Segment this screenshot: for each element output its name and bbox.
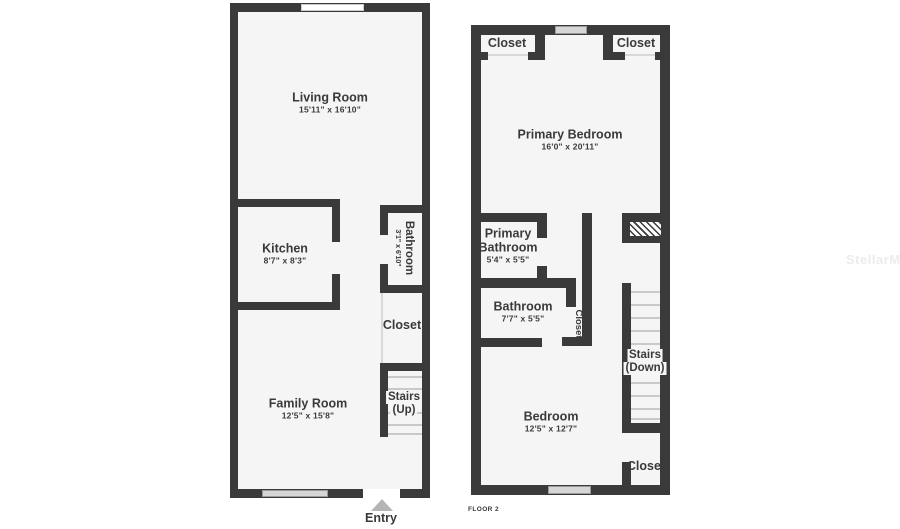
bathroom-label: Bathroom 7'7" x 5'5": [493, 300, 552, 325]
room-name: Primary Bedroom: [518, 128, 623, 142]
window: [301, 4, 364, 11]
bedroom-label: Bedroom 12'5" x 12'7": [524, 410, 579, 435]
room-name: Bathroom: [493, 300, 552, 314]
wall-segment: [422, 3, 430, 498]
wall-segment: [230, 302, 340, 310]
room-name: Living Room: [292, 91, 368, 105]
closet-front-line: [625, 54, 655, 56]
stair-tread: [631, 304, 660, 306]
bathroom-label: Bathroom 3'1" x 6'10": [393, 221, 415, 275]
wall-segment: [332, 199, 340, 242]
hatched-chase: [630, 222, 661, 236]
room-name: Closet: [627, 459, 665, 473]
room-dims: 12'5" x 15'8": [269, 411, 348, 422]
room-dims: 5'4" x 5'5": [478, 255, 537, 266]
entry-label: Entry: [365, 511, 397, 525]
entry-arrow-icon: [371, 499, 393, 511]
wall-segment: [622, 423, 670, 433]
stairs-down-label: Stairs (Down): [624, 349, 667, 375]
closet-top-right-label: Closet: [617, 36, 655, 50]
wall-segment: [655, 52, 670, 60]
room-name: Bathroom: [478, 241, 537, 255]
room-name: Stairs: [386, 391, 422, 404]
stair-tread: [631, 343, 660, 345]
room-name: Bedroom: [524, 410, 579, 424]
wall-segment: [471, 278, 573, 288]
room-dims: 7'7" x 5'5": [493, 314, 552, 325]
wall-segment: [380, 205, 388, 235]
stair-tread: [631, 317, 660, 319]
window: [555, 26, 587, 34]
stairs-up-label: Stairs (Up): [386, 391, 422, 417]
room-name: Stairs: [627, 349, 663, 362]
wall-segment: [537, 213, 547, 238]
wall-segment: [230, 199, 340, 207]
living-room-label: Living Room 15'11" x 16'10": [292, 91, 368, 116]
window: [548, 486, 591, 494]
room-name: Primary: [478, 227, 537, 241]
closet-top-left-label: Closet: [488, 36, 526, 50]
hall-closet-label: Closet: [573, 309, 583, 338]
closet-label: Closet: [383, 318, 421, 332]
wall-segment: [230, 489, 430, 498]
room-name: Family Room: [269, 397, 348, 411]
wall-segment: [380, 285, 422, 293]
room-name: Closet: [573, 309, 583, 338]
wall-segment: [230, 3, 238, 498]
watermark: StellarMLS: [846, 252, 900, 267]
stair-tread: [631, 291, 660, 293]
stair-tread: [388, 376, 422, 378]
closet-front-line: [488, 54, 528, 56]
entry-door-opening: [363, 489, 400, 498]
room-name: Bathroom: [402, 221, 415, 275]
room-name: Closet: [488, 36, 526, 50]
room-dims: 3'1" x 6'10": [393, 221, 402, 275]
primary-bathroom-label: Primary Bathroom 5'4" x 5'5": [478, 227, 537, 266]
entry-text: Entry: [365, 511, 397, 525]
stair-tread: [631, 418, 660, 420]
stair-tread: [631, 330, 660, 332]
floor-2-tag: FLOOR 2: [468, 506, 499, 513]
wall-segment: [603, 52, 625, 60]
floor-plan-canvas: Living Room 15'11" x 16'10" Kitchen 8'7"…: [0, 0, 900, 529]
closet-bottom-right-label: Closet: [627, 459, 665, 473]
room-dims: 15'11" x 16'10": [292, 105, 368, 116]
stair-tread: [388, 424, 422, 426]
stairs-direction: (Up): [391, 404, 418, 417]
room-dims: 12'5" x 12'7": [524, 424, 579, 435]
wall-segment: [566, 278, 576, 307]
wall-segment: [528, 52, 545, 60]
wall-segment: [471, 213, 547, 222]
stairs-direction: (Down): [624, 362, 667, 375]
stair-tread: [388, 388, 422, 390]
window: [262, 490, 328, 497]
wall-segment: [622, 236, 667, 243]
wall-segment: [471, 52, 488, 60]
stair-tread: [631, 395, 660, 397]
kitchen-label: Kitchen 8'7" x 8'3": [262, 242, 308, 267]
room-name: Closet: [617, 36, 655, 50]
family-room-label: Family Room 12'5" x 15'8": [269, 397, 348, 422]
primary-bedroom-label: Primary Bedroom 16'0" x 20'11": [518, 128, 623, 153]
wall-segment: [471, 338, 542, 347]
room-dims: 16'0" x 20'11": [518, 142, 623, 153]
stair-tread: [388, 433, 422, 435]
stair-tread: [631, 382, 660, 384]
room-name: Kitchen: [262, 242, 308, 256]
room-name: Closet: [383, 318, 421, 332]
room-dims: 8'7" x 8'3": [262, 256, 308, 267]
stair-tread: [631, 408, 660, 410]
